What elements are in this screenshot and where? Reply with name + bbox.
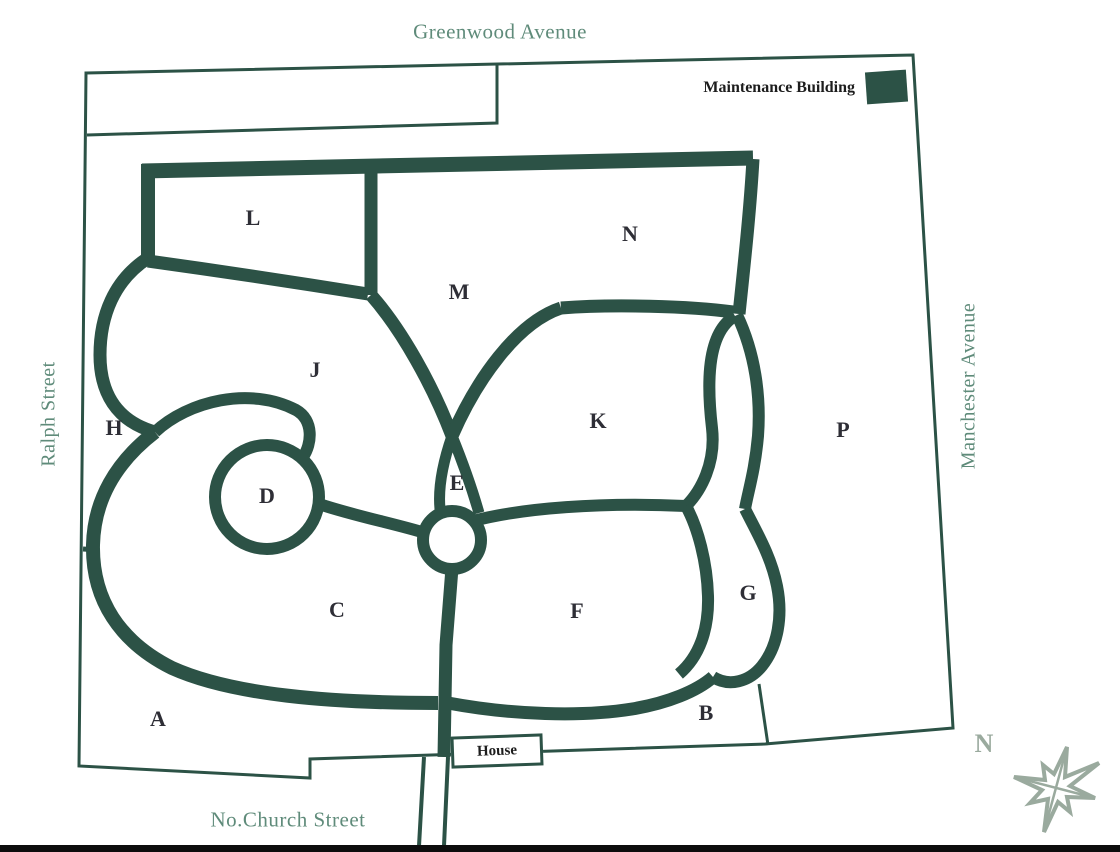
north-strip-boundary xyxy=(87,64,497,135)
road-l-bottom xyxy=(148,261,368,294)
street-label-no-church-street: No.Church Street xyxy=(211,808,366,833)
road-j-m-curve xyxy=(371,295,452,436)
road-h-loop xyxy=(100,258,155,432)
compass-facets xyxy=(1014,747,1095,832)
road-c-loop xyxy=(93,432,438,703)
road-top xyxy=(142,158,753,171)
section-label-M: M xyxy=(449,279,470,305)
section-label-P: P xyxy=(836,417,849,443)
section-label-D: D xyxy=(259,483,275,509)
road-k-east xyxy=(686,316,735,506)
road-entrance xyxy=(444,568,452,757)
cemetery-map: Greenwood Avenue Ralph Street Manchester… xyxy=(0,0,1120,852)
compass-north-label: N xyxy=(975,729,994,759)
section-label-N: N xyxy=(622,221,638,247)
section-label-F: F xyxy=(570,598,583,624)
road-roundabout xyxy=(423,511,481,569)
road-f-bottom xyxy=(448,677,713,714)
section-label-G: G xyxy=(739,580,756,606)
section-label-J: J xyxy=(310,357,321,383)
road-k-bottom xyxy=(473,505,686,521)
section-label-A: A xyxy=(150,706,166,732)
maintenance-building-marker xyxy=(865,70,908,105)
road-network xyxy=(0,0,1120,852)
road-d-east xyxy=(319,504,425,533)
section-label-E: E xyxy=(450,470,465,496)
street-label-ralph-street: Ralph Street xyxy=(38,361,61,466)
section-label-H: H xyxy=(105,415,122,441)
drive-network xyxy=(93,158,779,757)
maintenance-building-label: Maintenance Building xyxy=(640,79,855,97)
compass-rose xyxy=(1014,747,1099,832)
section-label-L: L xyxy=(246,205,261,231)
section-label-B: B xyxy=(699,700,714,726)
street-label-greenwood-avenue: Greenwood Avenue xyxy=(413,20,587,45)
road-n-east xyxy=(739,159,753,314)
bottom-edge-bar xyxy=(0,845,1120,852)
section-b-p-divider xyxy=(759,684,768,745)
section-label-K: K xyxy=(589,408,606,434)
road-n-bottom xyxy=(561,306,733,312)
road-p-corridor xyxy=(737,315,759,509)
road-f-east xyxy=(679,506,708,674)
section-label-C: C xyxy=(329,597,345,623)
house-label: House xyxy=(477,742,518,760)
street-label-manchester-avenue: Manchester Avenue xyxy=(958,303,981,469)
house-marker: House xyxy=(450,733,543,768)
entrance-drive-lines xyxy=(419,757,448,846)
road-m-k-curve xyxy=(452,308,561,436)
